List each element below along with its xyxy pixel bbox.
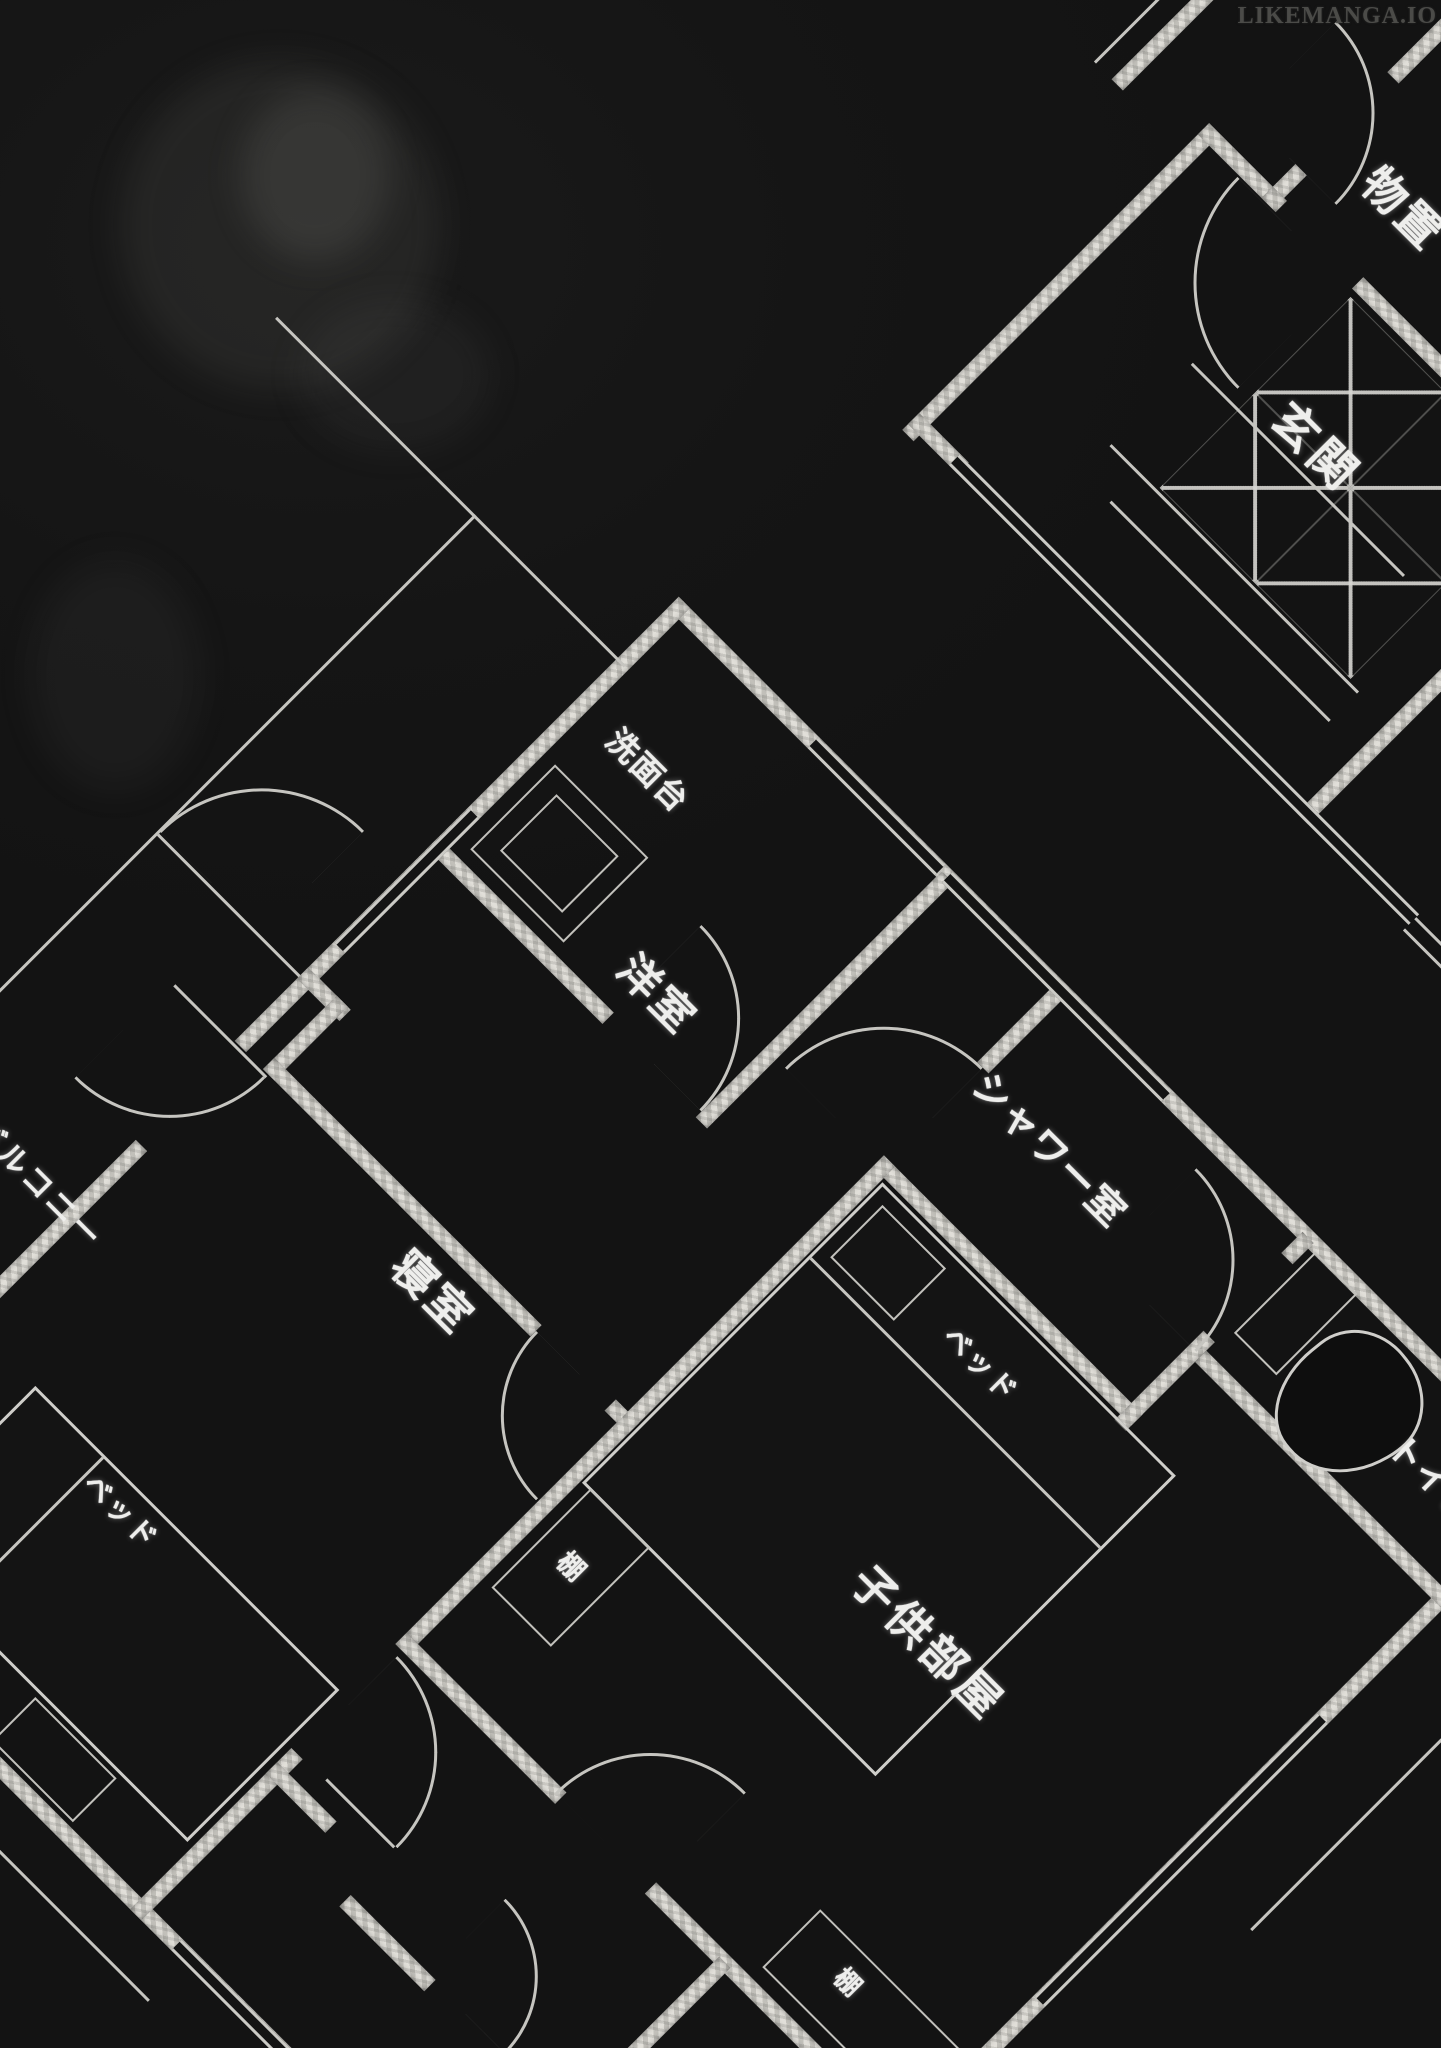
- wall: [560, 1957, 730, 2048]
- exterior-line: [1403, 928, 1441, 1284]
- manga-page: 物置 玄関 洗面台 洋室 シャワー室 寝室 子供部屋 トイレ バルコニー ベッド…: [0, 0, 1441, 2048]
- room-label-bedroom: 寝室: [379, 1233, 492, 1346]
- wall: [339, 1895, 435, 1991]
- ink-smudge: [30, 560, 200, 790]
- door-arc-balcony-upper: [159, 728, 364, 933]
- door-arc-hall: [428, 1899, 584, 2048]
- site-watermark: LIKEMANGA.IO: [1222, 3, 1437, 30]
- exterior-line: [1414, 917, 1441, 1273]
- door-arc-balcony: [74, 983, 265, 1174]
- window: [1034, 1713, 1327, 2006]
- exterior-line: [1250, 1632, 1441, 1931]
- room-label-shower-room: シャワー室: [962, 1057, 1142, 1237]
- wall: [977, 984, 1066, 1073]
- ink-smudge: [240, 90, 390, 260]
- door-arc-children: [555, 1697, 746, 1888]
- window: [808, 738, 946, 876]
- wall: [902, 129, 1215, 442]
- room-label-washstand: 洗面台: [597, 717, 702, 822]
- ink-smudge: [300, 300, 490, 450]
